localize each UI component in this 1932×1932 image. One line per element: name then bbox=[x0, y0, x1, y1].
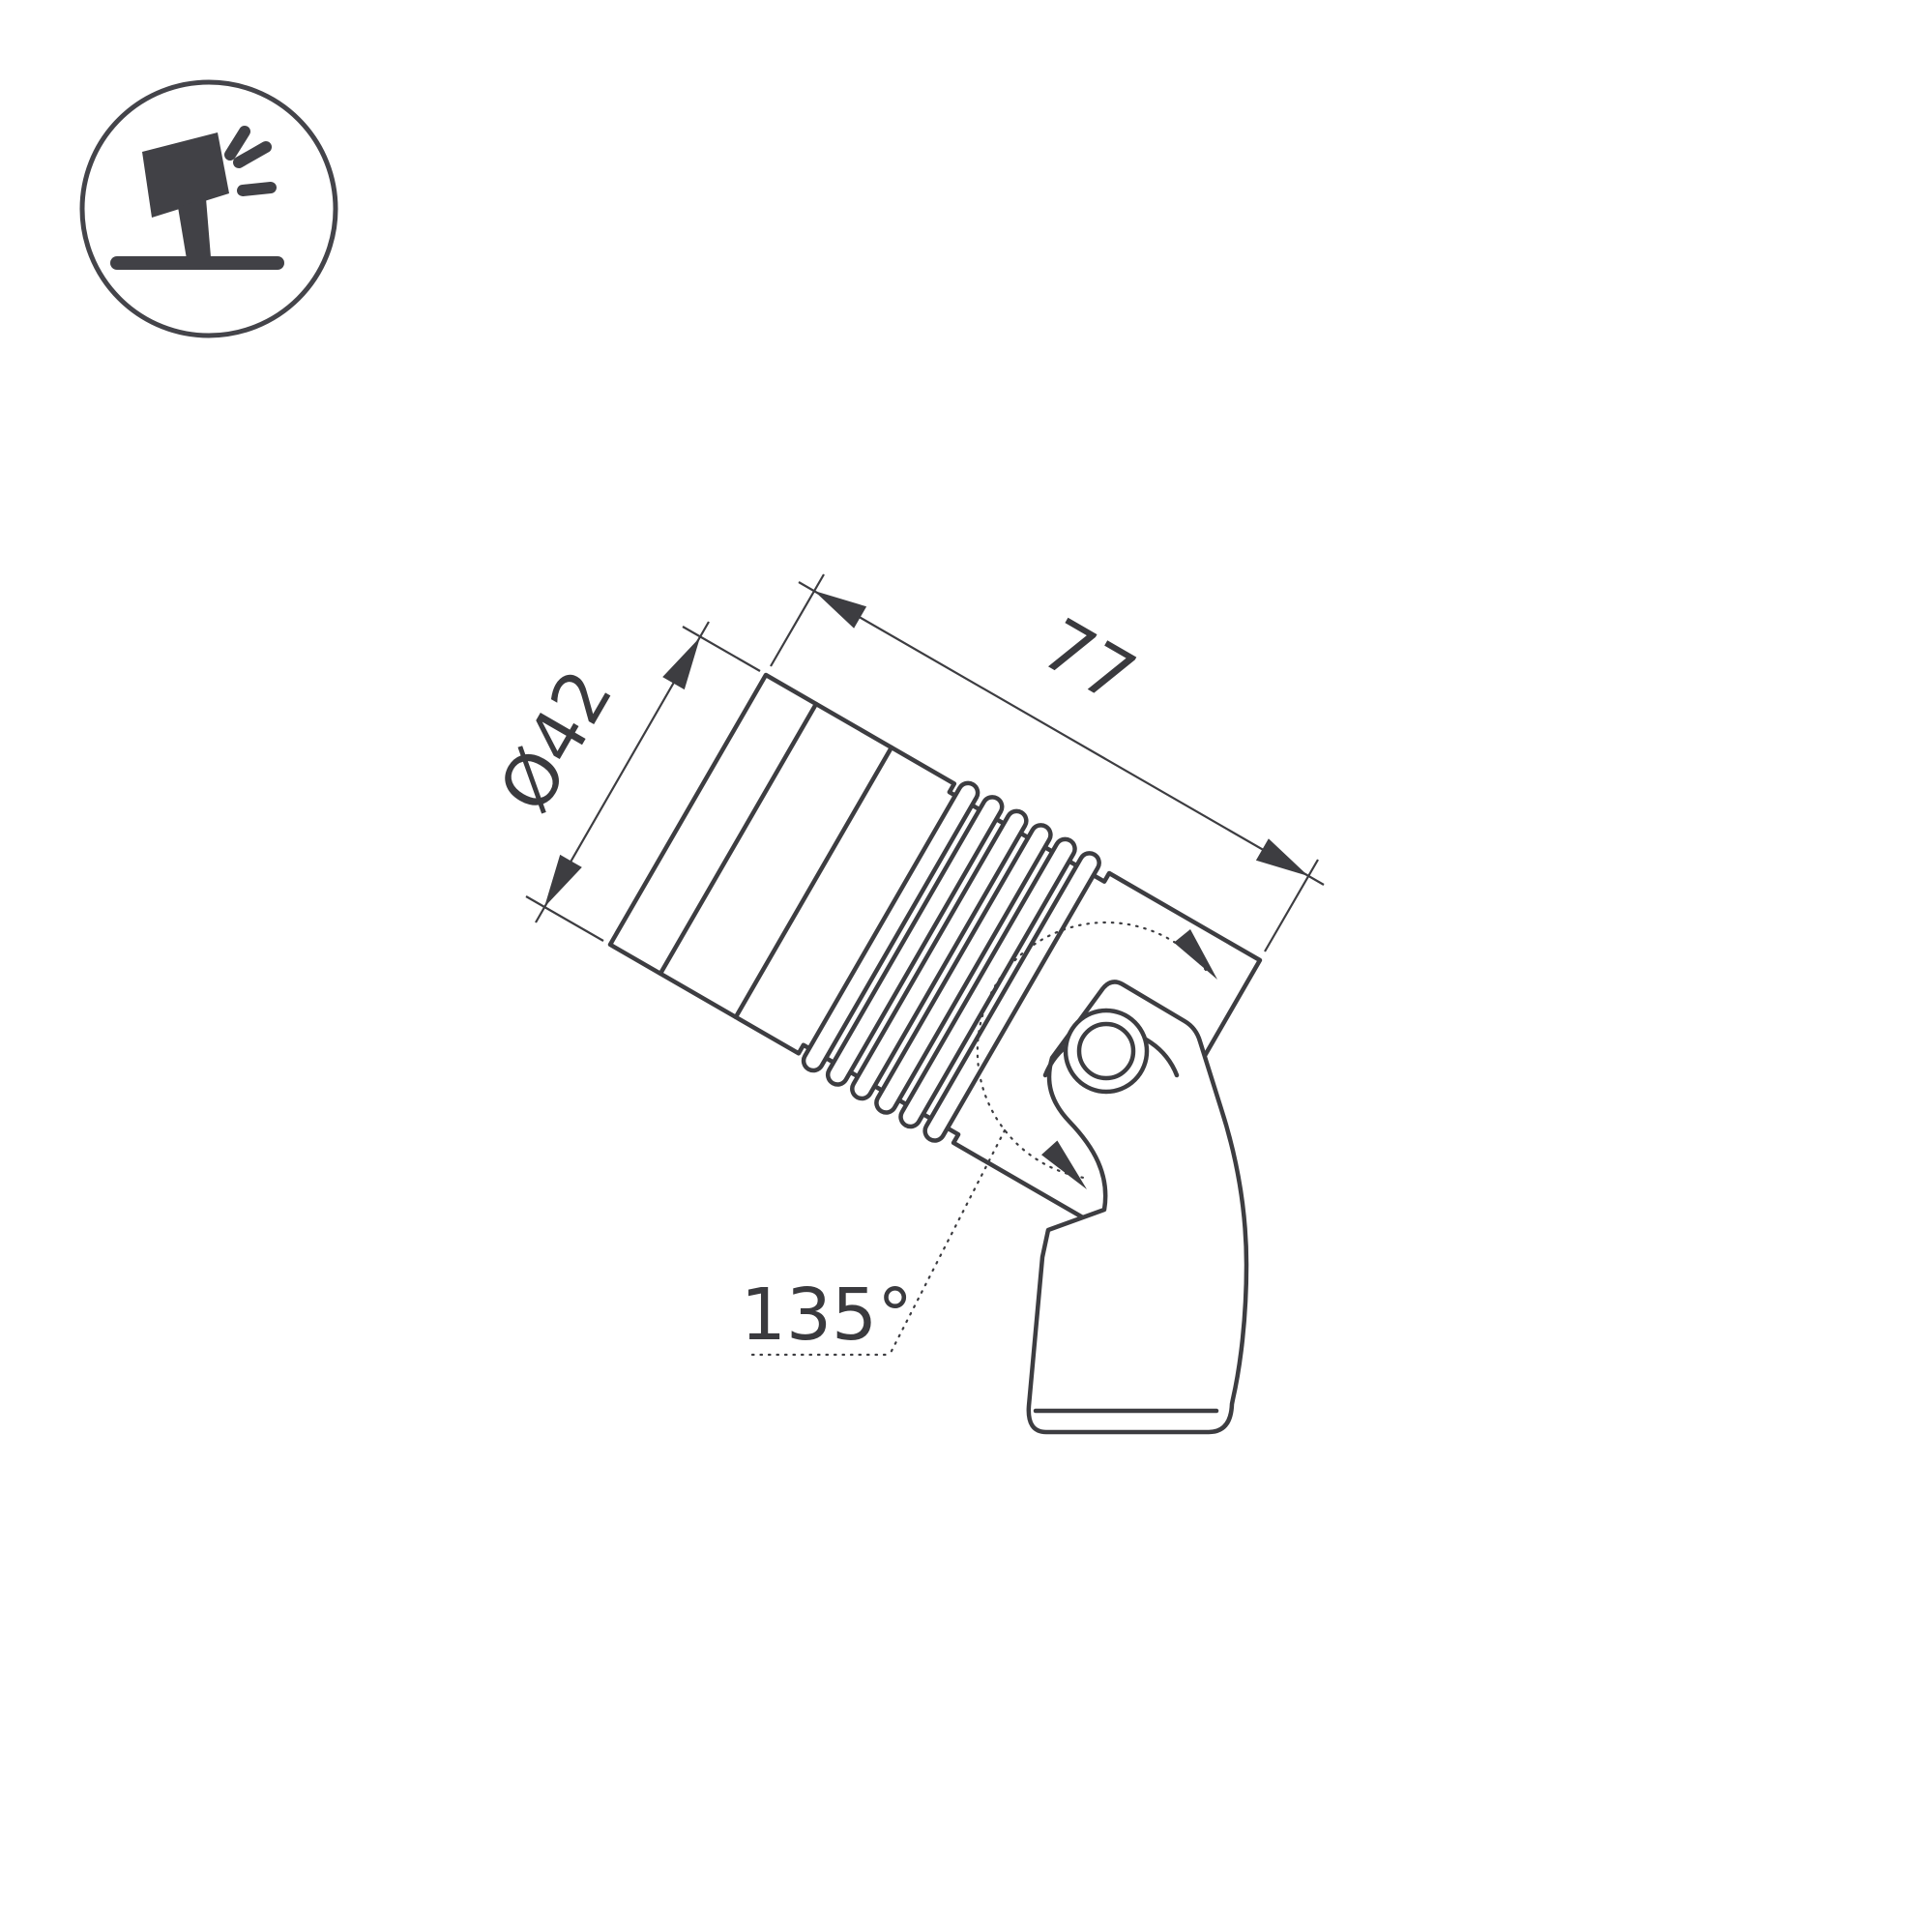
icon-light-rays bbox=[230, 132, 271, 190]
pivot-hole bbox=[1079, 1024, 1133, 1078]
spotlight-icon bbox=[82, 82, 336, 336]
length-label: 77 bbox=[1028, 603, 1149, 721]
angle-label: 135° bbox=[741, 1273, 913, 1357]
page: Ø42 77 135° bbox=[0, 0, 1932, 1932]
extension-line bbox=[771, 574, 824, 666]
extension-line bbox=[1265, 860, 1318, 951]
arrowhead bbox=[1256, 838, 1308, 876]
icon-circle-border bbox=[82, 82, 336, 336]
arrowhead bbox=[662, 637, 700, 689]
arrowhead bbox=[814, 591, 866, 629]
icon-lamp-stand bbox=[178, 198, 211, 259]
pivot-bolt bbox=[1066, 1010, 1147, 1092]
arrowhead bbox=[544, 855, 582, 907]
diameter-label: Ø42 bbox=[483, 657, 629, 826]
drawing-canvas: Ø42 77 135° bbox=[0, 0, 1932, 1932]
